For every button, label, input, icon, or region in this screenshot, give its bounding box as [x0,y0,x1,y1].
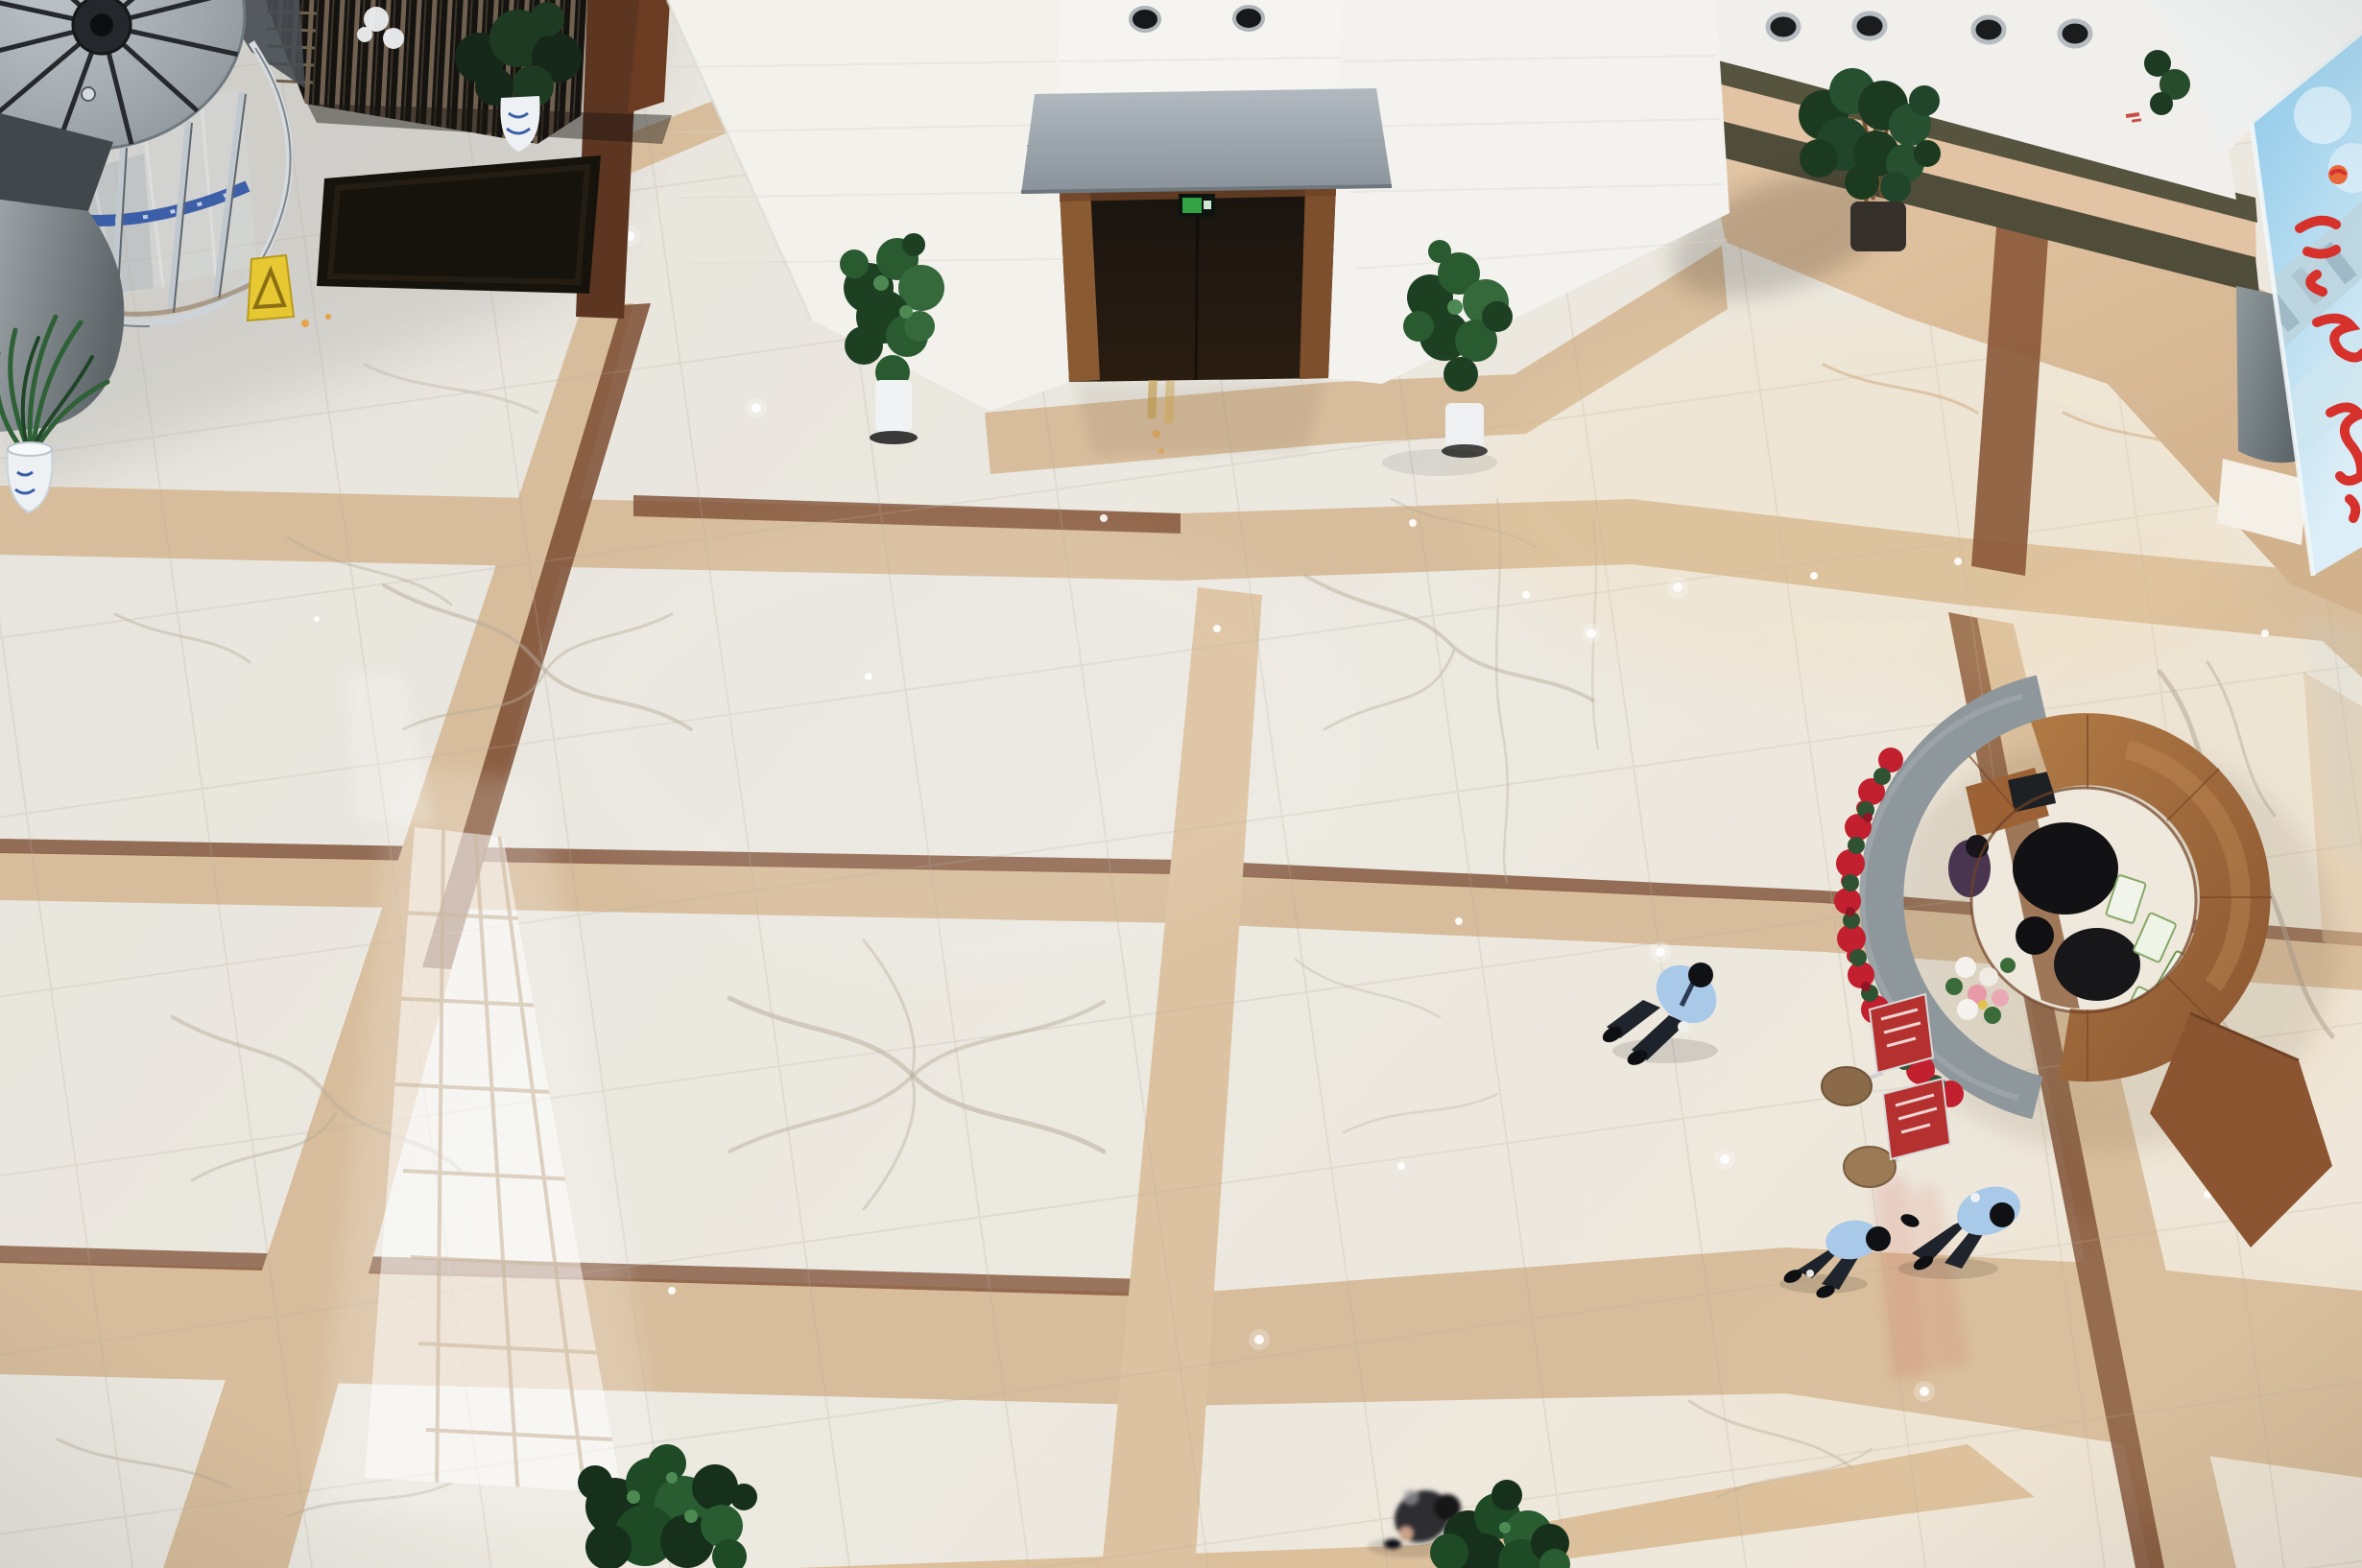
lobby-scene [0,0,2362,1568]
lobby-photo [0,0,2362,1568]
vignette [0,0,2362,1568]
